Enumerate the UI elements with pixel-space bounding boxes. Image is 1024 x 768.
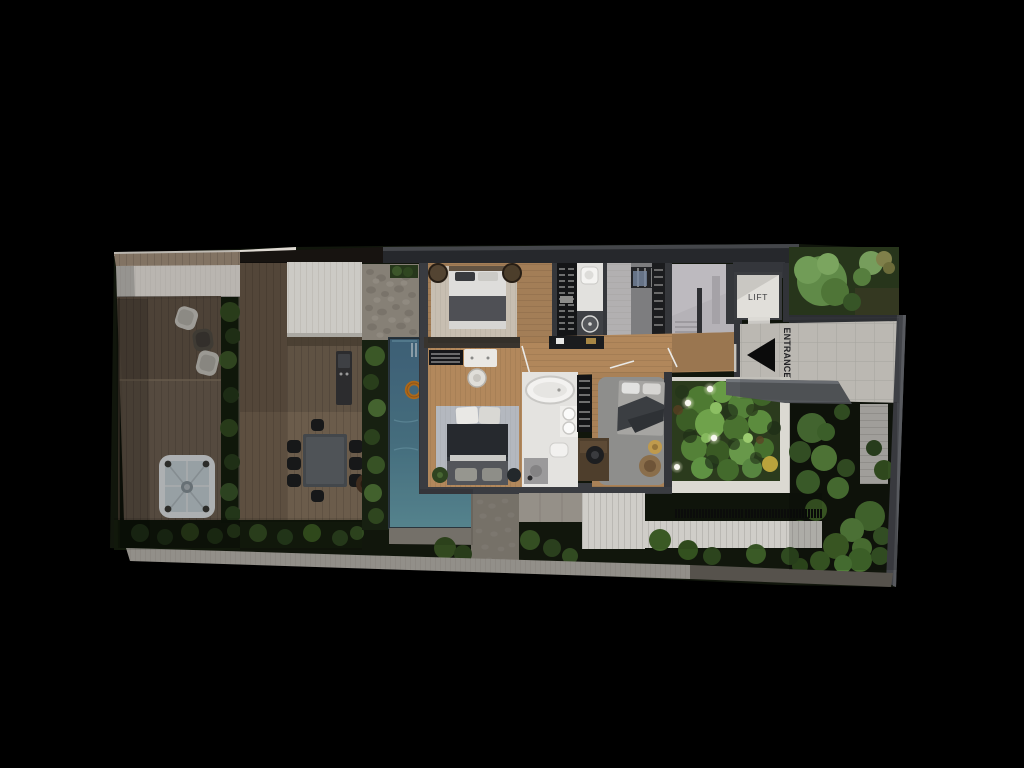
svg-text:LIFT: LIFT: [748, 292, 768, 302]
